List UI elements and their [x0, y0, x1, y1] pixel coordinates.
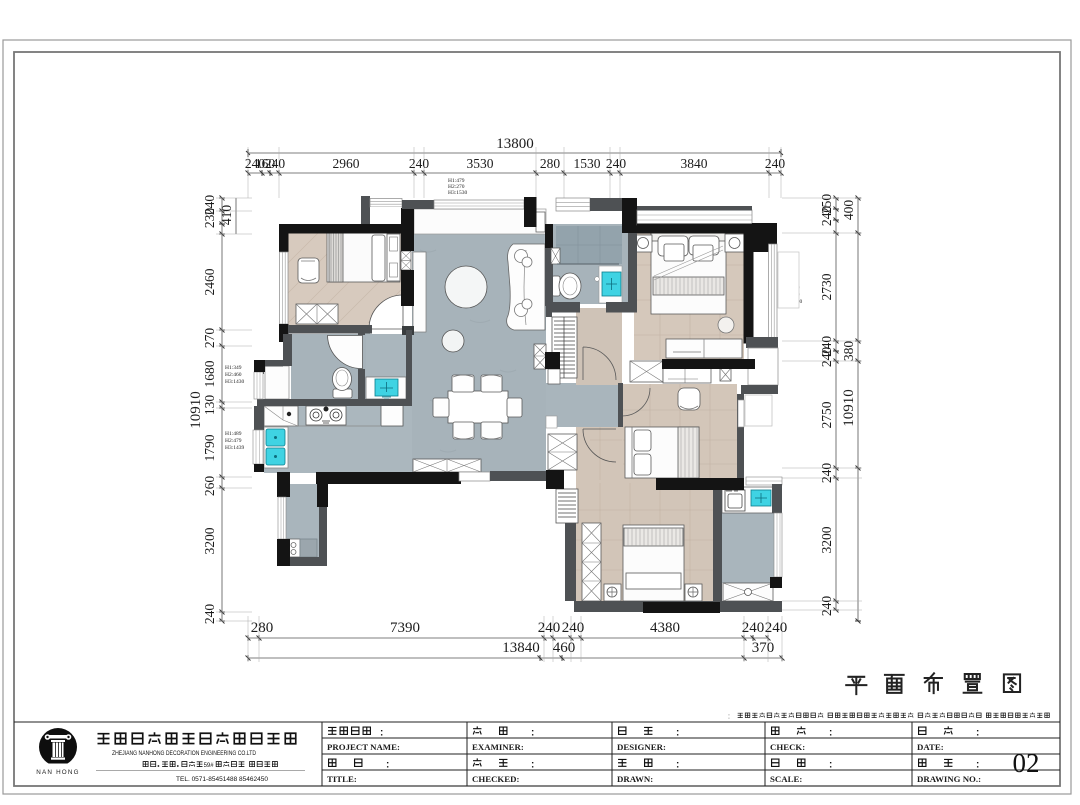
svg-text::: :: [976, 760, 979, 771]
svg-text:240: 240: [819, 347, 834, 368]
svg-text:TITLE:: TITLE:: [327, 774, 357, 784]
svg-text:3200: 3200: [202, 527, 217, 554]
svg-text:13840: 13840: [502, 640, 540, 656]
svg-text:460: 460: [553, 640, 576, 656]
svg-text::: :: [728, 714, 730, 721]
svg-text:410: 410: [219, 205, 234, 226]
svg-text:H1:489: H1:489: [225, 431, 242, 437]
svg-text:H3:1439: H3:1439: [225, 445, 245, 451]
svg-text::: :: [829, 728, 832, 739]
svg-text:2750: 2750: [819, 401, 834, 428]
svg-text:240: 240: [819, 596, 834, 617]
svg-text:240: 240: [742, 620, 765, 636]
svg-text:240: 240: [765, 620, 788, 636]
svg-text:CHECK:: CHECK:: [770, 742, 805, 752]
svg-text:DATE:: DATE:: [917, 742, 944, 752]
svg-text:1530: 1530: [574, 156, 601, 171]
svg-text:240: 240: [765, 156, 786, 171]
svg-text:240: 240: [819, 206, 834, 227]
svg-text:EXAMINER:: EXAMINER:: [472, 742, 524, 752]
svg-text:1790: 1790: [202, 434, 217, 461]
svg-text:2730: 2730: [819, 273, 834, 300]
svg-text:380: 380: [841, 341, 856, 362]
svg-text:TEL. 0571-85451488 8546245: TEL. 0571-85451488 85462450: [176, 776, 268, 783]
svg-text::: :: [829, 760, 832, 771]
svg-text:H1:349: H1:349: [225, 365, 242, 371]
svg-text:240: 240: [265, 156, 286, 171]
svg-text:240: 240: [538, 620, 561, 636]
svg-text:240: 240: [606, 156, 627, 171]
svg-text:280: 280: [251, 620, 274, 636]
svg-text:ZHEJIANG NANHONG DECORATION: ZHEJIANG NANHONG DECORATION ENGINEERING …: [112, 750, 256, 757]
svg-text:H2:479: H2:479: [225, 438, 242, 444]
svg-text:240: 240: [562, 620, 585, 636]
svg-text:240: 240: [409, 156, 430, 171]
svg-text:230: 230: [202, 208, 217, 229]
svg-text:DRAWING NO.:: DRAWING NO.:: [917, 774, 981, 784]
svg-text:DRAWN:: DRAWN:: [617, 774, 653, 784]
svg-text:PROJECT NAME:: PROJECT NAME:: [327, 742, 400, 752]
svg-text:13800: 13800: [496, 136, 534, 152]
svg-text:02: 02: [1013, 748, 1040, 778]
svg-text:H3:1430: H3:1430: [225, 379, 245, 385]
svg-text:370: 370: [752, 640, 775, 656]
svg-text:4380: 4380: [650, 620, 680, 636]
svg-text:H2:460: H2:460: [225, 372, 242, 378]
svg-text:240: 240: [819, 463, 834, 484]
svg-text::: :: [531, 728, 534, 739]
svg-text::: :: [676, 760, 679, 771]
svg-text:7390: 7390: [390, 620, 420, 636]
svg-text:260: 260: [202, 476, 217, 497]
svg-text:1680: 1680: [202, 360, 217, 387]
svg-text:2460: 2460: [202, 268, 217, 295]
svg-text::: :: [531, 760, 534, 771]
svg-text:DESIGNER:: DESIGNER:: [617, 742, 666, 752]
svg-text:240: 240: [202, 604, 217, 625]
svg-text::: :: [386, 760, 389, 771]
svg-text::: :: [676, 728, 679, 739]
svg-text:2960: 2960: [333, 156, 360, 171]
svg-text:59#: 59#: [204, 763, 215, 769]
svg-text::: :: [976, 728, 979, 739]
svg-text:3200: 3200: [819, 526, 834, 553]
svg-text:3840: 3840: [681, 156, 708, 171]
svg-text:400: 400: [841, 200, 856, 221]
svg-text:130: 130: [202, 395, 217, 416]
svg-text:SCALE:: SCALE:: [770, 774, 802, 784]
svg-text:CHECKED:: CHECKED:: [472, 774, 519, 784]
svg-text:10910: 10910: [841, 389, 857, 427]
svg-text:270: 270: [202, 328, 217, 349]
svg-text:3530: 3530: [467, 156, 494, 171]
svg-text:NAN HONG: NAN HONG: [36, 769, 80, 776]
svg-text:280: 280: [540, 156, 561, 171]
svg-text:H3:1530: H3:1530: [448, 190, 468, 196]
svg-text::: :: [380, 728, 383, 739]
